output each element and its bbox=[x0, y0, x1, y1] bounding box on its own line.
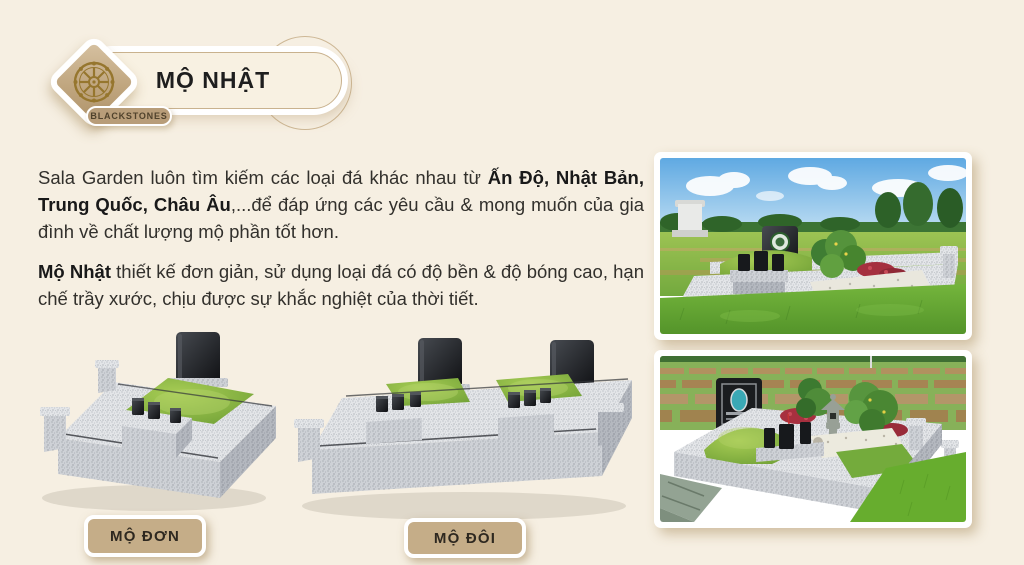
brand-name: BLACKSTONES bbox=[90, 111, 167, 121]
label-mo-don-text: MỘ ĐƠN bbox=[110, 528, 180, 545]
slide: MỘ NHẬT bbox=[0, 0, 1024, 565]
body-text: Sala Garden luôn tìm kiếm các loại đá kh… bbox=[38, 164, 644, 325]
page-title: MỘ NHẬT bbox=[156, 67, 270, 94]
label-mo-don-button[interactable]: MỘ ĐƠN bbox=[84, 515, 206, 557]
photo-cemetery-wide-image bbox=[660, 158, 966, 334]
photo-cemetery-wide bbox=[654, 152, 972, 340]
render-double-tomb-image bbox=[282, 330, 642, 526]
description-text: thiết kế đơn giản, sử dụng loại đá có độ… bbox=[38, 261, 644, 309]
intro-text-start: Sala Garden luôn tìm kiếm các loại đá kh… bbox=[38, 167, 488, 188]
photo-tomb-closeup-image bbox=[660, 356, 966, 522]
paragraph-intro: Sala Garden luôn tìm kiếm các loại đá kh… bbox=[38, 164, 644, 245]
render-single-tomb-image bbox=[26, 326, 286, 518]
paragraph-description: Mộ Nhật thiết kế đơn giản, sử dụng loại … bbox=[38, 258, 644, 312]
label-mo-doi-button[interactable]: MỘ ĐÔI bbox=[404, 518, 526, 558]
dharma-wheel-icon bbox=[71, 59, 117, 105]
description-bold: Mộ Nhật bbox=[38, 261, 111, 282]
brand-badge: BLACKSTONES bbox=[86, 106, 172, 126]
photo-tomb-closeup bbox=[654, 350, 972, 528]
label-mo-doi-text: MỘ ĐÔI bbox=[434, 530, 496, 547]
